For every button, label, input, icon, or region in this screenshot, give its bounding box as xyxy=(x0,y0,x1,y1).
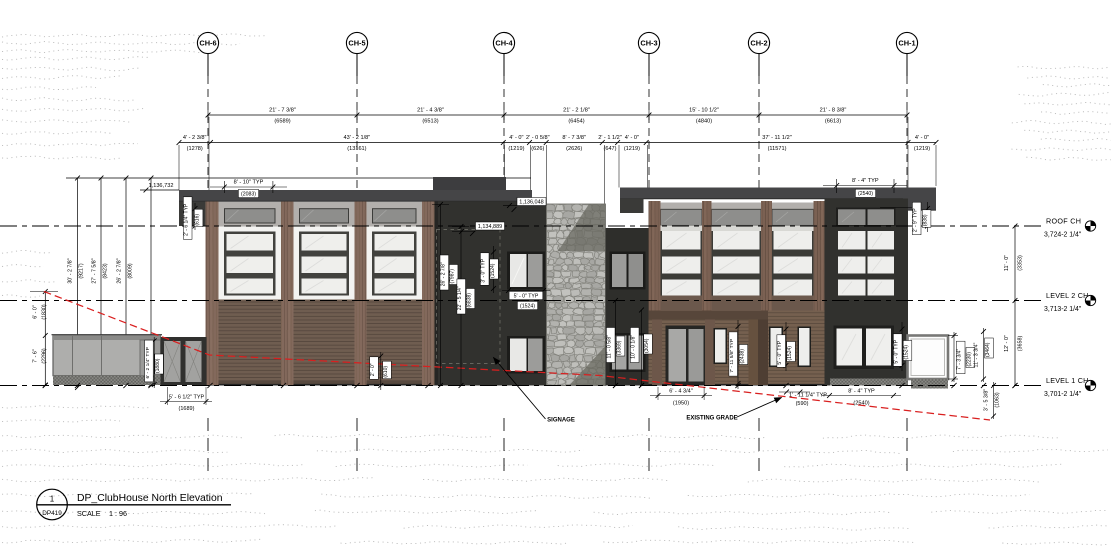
svg-text:5' - 0" TYP: 5' - 0" TYP xyxy=(894,339,900,363)
svg-text:5' - 6 1/2" TYP: 5' - 6 1/2" TYP xyxy=(169,395,205,401)
svg-text:(3464): (3464) xyxy=(985,342,991,357)
svg-text:(2540): (2540) xyxy=(858,191,873,197)
svg-text:37' - 11 1/2": 37' - 11 1/2" xyxy=(762,135,791,141)
svg-text:8' - 4" TYP: 8' - 4" TYP xyxy=(852,178,879,184)
svg-text:(2296): (2296) xyxy=(42,348,48,364)
svg-text:2' - 6 1/4" TYP: 2' - 6 1/4" TYP xyxy=(184,203,190,236)
svg-text:(3369): (3369) xyxy=(617,340,623,355)
svg-text:(6838): (6838) xyxy=(467,293,473,308)
svg-text:(8009): (8009) xyxy=(128,263,134,279)
svg-text:(1524): (1524) xyxy=(490,263,496,278)
svg-text:(2083): (2083) xyxy=(241,191,256,197)
svg-text:4' - 0": 4' - 0" xyxy=(915,135,929,141)
svg-text:10' - 0 1/8": 10' - 0 1/8" xyxy=(631,335,637,359)
svg-text:(1950): (1950) xyxy=(673,401,689,407)
svg-text:(6513): (6513) xyxy=(422,119,438,125)
svg-text:1,136,048: 1,136,048 xyxy=(519,200,543,206)
svg-text:CH-6: CH-6 xyxy=(199,39,216,48)
svg-text:8' - 10" TYP: 8' - 10" TYP xyxy=(234,180,264,186)
svg-text:11' - 0": 11' - 0" xyxy=(1004,255,1010,271)
svg-text:1: 1 xyxy=(50,495,55,504)
svg-text:4' - 0": 4' - 0" xyxy=(625,135,639,141)
svg-text:(1063): (1063) xyxy=(995,392,1001,408)
svg-text:15' - 10 1/2": 15' - 10 1/2" xyxy=(689,108,719,114)
svg-text:2' - 9" TYP: 2' - 9" TYP xyxy=(913,208,919,232)
svg-text:3,713-2 1/4": 3,713-2 1/4" xyxy=(1044,306,1082,313)
svg-text:(626): (626) xyxy=(531,146,544,152)
svg-text:(838): (838) xyxy=(923,214,929,226)
svg-text:8' - 4" TYP: 8' - 4" TYP xyxy=(848,389,875,395)
svg-text:21' - 7 3/8": 21' - 7 3/8" xyxy=(269,108,296,114)
svg-text:(2626): (2626) xyxy=(566,146,582,152)
svg-text:27' - 7 5/8": 27' - 7 5/8" xyxy=(92,258,98,283)
svg-text:(2540): (2540) xyxy=(853,401,869,407)
svg-text:(610): (610) xyxy=(383,366,389,378)
svg-text:(1524): (1524) xyxy=(787,346,793,361)
svg-text:(1219): (1219) xyxy=(914,146,930,152)
svg-text:4' - 0": 4' - 0" xyxy=(509,135,523,141)
svg-text:3' - 5 3/8": 3' - 5 3/8" xyxy=(984,389,990,411)
svg-text:(1880): (1880) xyxy=(155,358,161,373)
svg-text:(13161): (13161) xyxy=(347,146,366,152)
svg-text:7' - 11 5/8" TYP: 7' - 11 5/8" TYP xyxy=(729,339,735,373)
svg-text:DP419: DP419 xyxy=(42,510,62,517)
svg-text:1' - 11 1/4" TYP: 1' - 11 1/4" TYP xyxy=(789,393,827,399)
svg-text:7' - 6": 7' - 6" xyxy=(33,349,39,363)
svg-text:(3054): (3054) xyxy=(644,338,650,353)
svg-text:2' - 0 5/8": 2' - 0 5/8" xyxy=(526,135,550,141)
svg-text:DP_ClubHouse North Elevation: DP_ClubHouse North Elevation xyxy=(77,493,223,504)
svg-text:(4840): (4840) xyxy=(696,119,712,125)
svg-text:21' - 8 3/8": 21' - 8 3/8" xyxy=(820,108,847,114)
svg-text:(3353): (3353) xyxy=(1018,255,1024,271)
svg-text:3,701-2 1/4": 3,701-2 1/4" xyxy=(1044,391,1082,398)
svg-text:EXISTING GRADE: EXISTING GRADE xyxy=(686,416,737,422)
svg-text:CH-3: CH-3 xyxy=(640,39,657,48)
svg-text:5' - 0" TYP: 5' - 0" TYP xyxy=(777,340,783,364)
svg-text:(2438): (2438) xyxy=(739,349,745,364)
svg-text:(3658): (3658) xyxy=(1018,336,1024,352)
svg-text:(616): (616) xyxy=(195,214,201,226)
svg-text:CH-5: CH-5 xyxy=(348,39,365,48)
svg-text:11' - 3 3/4": 11' - 3 3/4" xyxy=(974,342,980,367)
svg-text:11' - 0 5/8": 11' - 0 5/8" xyxy=(607,335,613,359)
svg-text:(1689): (1689) xyxy=(179,406,195,412)
svg-text:(1219): (1219) xyxy=(624,146,640,152)
svg-text:21' - 2 1/8": 21' - 2 1/8" xyxy=(563,108,590,114)
svg-text:(1524): (1524) xyxy=(520,303,535,309)
svg-text:6' - 0": 6' - 0" xyxy=(33,305,39,319)
svg-text:(1830): (1830) xyxy=(42,304,48,320)
svg-text:CH-4: CH-4 xyxy=(495,39,513,48)
svg-text:26' - 2 7/8": 26' - 2 7/8" xyxy=(117,258,123,283)
svg-text:21' - 4 3/8": 21' - 4 3/8" xyxy=(417,108,444,114)
svg-text:7' - 3 3/4": 7' - 3 3/4" xyxy=(957,349,963,370)
svg-text:(7987): (7987) xyxy=(450,269,456,284)
svg-text:(9217): (9217) xyxy=(79,263,85,279)
svg-text:CH-1: CH-1 xyxy=(898,39,915,48)
svg-text:1,134,889: 1,134,889 xyxy=(478,224,502,230)
svg-text:(6589): (6589) xyxy=(274,119,290,125)
svg-text:CH-2: CH-2 xyxy=(750,39,767,48)
svg-text:4' - 2 3/8": 4' - 2 3/8" xyxy=(183,135,207,141)
svg-text:(647): (647) xyxy=(603,146,616,152)
svg-text:(1278): (1278) xyxy=(187,146,203,152)
svg-text:1,136,732: 1,136,732 xyxy=(149,183,174,189)
svg-text:(6454): (6454) xyxy=(568,119,584,125)
svg-text:5' - 0" TYP: 5' - 0" TYP xyxy=(514,293,539,299)
svg-text:(1524): (1524) xyxy=(904,345,910,360)
svg-text:6' - 2 1/4" TYP: 6' - 2 1/4" TYP xyxy=(145,347,151,378)
svg-text:8' - 7 3/8": 8' - 7 3/8" xyxy=(562,135,586,141)
svg-text:LEVEL 1 CH: LEVEL 1 CH xyxy=(1046,376,1088,385)
svg-text:1 : 96: 1 : 96 xyxy=(109,509,127,518)
svg-text:SIGNAGE: SIGNAGE xyxy=(547,418,575,424)
svg-text:2' - 0": 2' - 0" xyxy=(370,363,376,376)
svg-text:26' - 2 7/8": 26' - 2 7/8" xyxy=(440,262,446,286)
svg-text:12' - 0": 12' - 0" xyxy=(1004,335,1010,352)
svg-text:2' - 1 1/2": 2' - 1 1/2" xyxy=(598,135,622,141)
svg-text:6' - 4 3/4": 6' - 4 3/4" xyxy=(669,389,693,395)
svg-text:43' - 2 1/8": 43' - 2 1/8" xyxy=(344,135,371,141)
svg-text:(2230): (2230) xyxy=(966,352,972,367)
svg-text:22' - 5 1/4": 22' - 5 1/4" xyxy=(457,286,463,310)
svg-text:(1219): (1219) xyxy=(508,146,524,152)
svg-text:30' - 2 7/8": 30' - 2 7/8" xyxy=(68,258,74,283)
svg-text:(8423): (8423) xyxy=(103,263,109,279)
svg-text:LEVEL 2 CH: LEVEL 2 CH xyxy=(1046,291,1088,300)
svg-text:3' - 0" TYP: 3' - 0" TYP xyxy=(481,258,487,282)
svg-text:ROOF CH: ROOF CH xyxy=(1046,217,1081,226)
svg-text:(6613): (6613) xyxy=(825,119,841,125)
svg-text:SCALE: SCALE xyxy=(77,509,101,518)
svg-text:(11571): (11571) xyxy=(768,146,787,152)
svg-text:3,724-2 1/4": 3,724-2 1/4" xyxy=(1044,232,1082,239)
svg-text:(590): (590) xyxy=(796,401,809,407)
